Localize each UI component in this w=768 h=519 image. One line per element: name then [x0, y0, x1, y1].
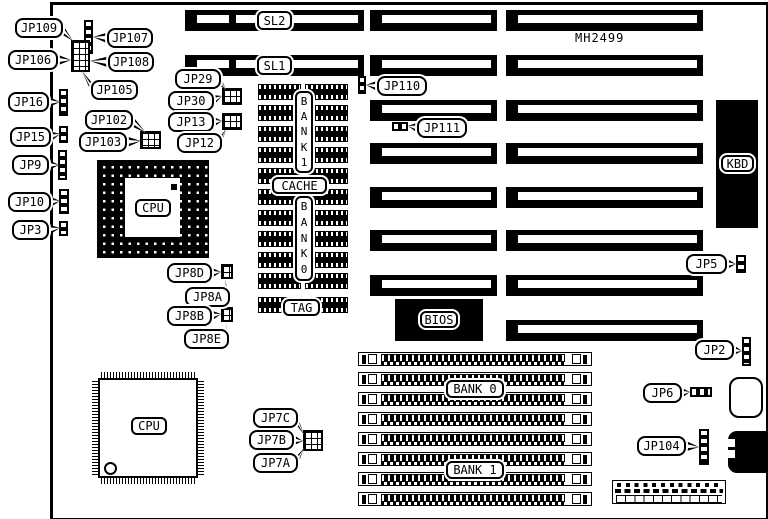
- label-cache: CACHE: [272, 177, 327, 194]
- callout-jp9: JP9: [12, 155, 49, 175]
- callout-jp105: JP105: [91, 80, 138, 100]
- label-sl2: SL2: [257, 11, 292, 30]
- label-cache-bank1: B A N K 1: [295, 91, 313, 173]
- callout-jp7b: JP7B: [249, 430, 294, 450]
- callout-jp29: JP29: [175, 69, 221, 89]
- label-simm-bank0: BANK 0: [446, 380, 504, 398]
- callout-jp15: JP15: [10, 127, 51, 147]
- callout-jp30: JP30: [168, 91, 214, 111]
- callout-jp104: JP104: [637, 436, 686, 456]
- callout-jp2: JP2: [695, 340, 734, 360]
- callout-jp7a: JP7A: [253, 453, 298, 473]
- callout-jp6: JP6: [643, 383, 682, 403]
- callout-jp111: JP111: [417, 118, 467, 138]
- callout-jp103: JP103: [79, 132, 127, 152]
- callout-jp109: JP109: [15, 18, 63, 38]
- callout-jp16: JP16: [8, 92, 49, 112]
- label-cache-bank0: B A N K 0: [295, 196, 313, 281]
- callout-jp102: JP102: [85, 110, 133, 130]
- callout-jp5: JP5: [686, 254, 727, 274]
- label-cpu-pga: CPU: [135, 199, 171, 217]
- callout-jp107: JP107: [107, 28, 153, 48]
- label-cpu-qfp: CPU: [131, 417, 167, 435]
- label-simm-bank1: BANK 1: [446, 461, 504, 479]
- callout-jp8a: JP8A: [185, 287, 230, 307]
- callout-jp10: JP10: [8, 192, 51, 212]
- callout-jp8d: JP8D: [167, 263, 212, 283]
- callout-jp108: JP108: [108, 52, 154, 72]
- label-sl1: SL1: [257, 56, 292, 75]
- callout-jp110: JP110: [377, 76, 427, 96]
- callout-jp3: JP3: [12, 220, 49, 240]
- callout-jp8b: JP8B: [167, 306, 212, 326]
- label-kbd: KBD: [721, 155, 754, 172]
- callout-jp12: JP12: [177, 133, 222, 153]
- label-tag: TAG: [283, 299, 320, 316]
- callout-jp106: JP106: [8, 50, 58, 70]
- callout-jp13: JP13: [168, 112, 214, 132]
- callout-jp7c: JP7C: [253, 408, 298, 428]
- motherboard-diagram: MH2499 SL2SL1CPUCPUKBDBIOSCACHETAGB A N …: [0, 0, 768, 519]
- label-bios: BIOS: [420, 311, 458, 328]
- callout-jp8e: JP8E: [184, 329, 229, 349]
